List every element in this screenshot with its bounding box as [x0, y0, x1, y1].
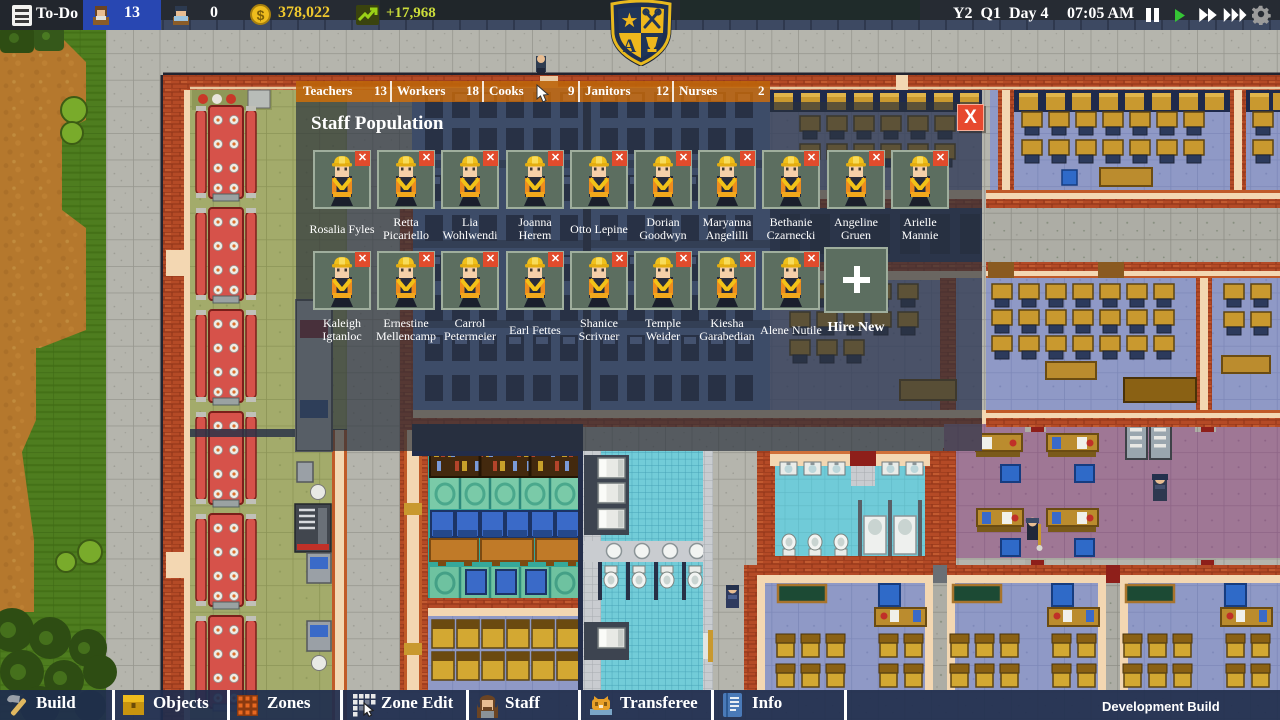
svg-text:A: A	[623, 36, 637, 57]
svg-text:★: ★	[621, 10, 639, 32]
